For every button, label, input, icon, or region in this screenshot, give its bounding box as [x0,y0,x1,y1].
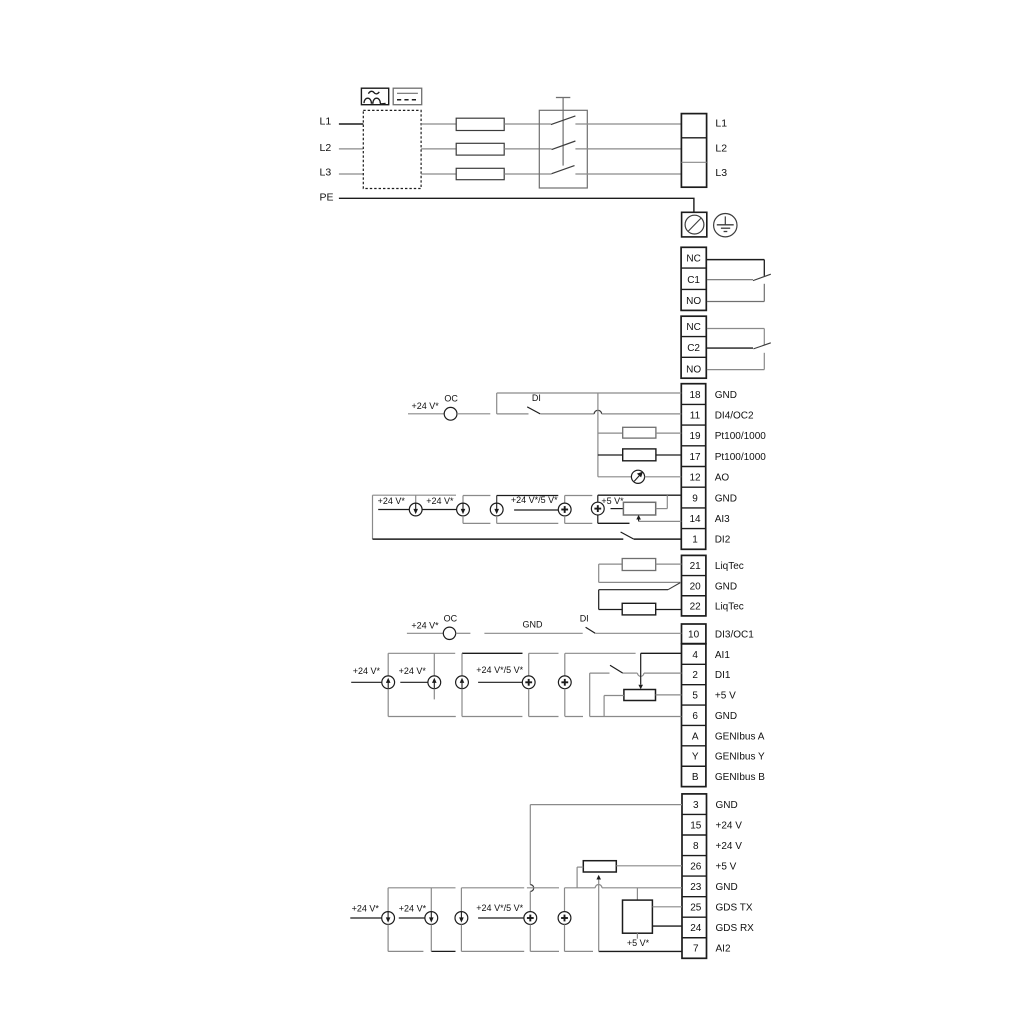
svg-text:GND: GND [715,493,737,504]
svg-text:23: 23 [690,882,702,893]
svg-text:11: 11 [690,410,701,421]
svg-text:L3: L3 [715,167,727,179]
svg-text:DI: DI [532,393,541,403]
svg-text:GND: GND [716,882,738,893]
svg-text:+5 V: +5 V [715,691,736,702]
svg-text:GND: GND [715,581,737,592]
svg-text:DI4/OC2: DI4/OC2 [715,410,754,421]
svg-text:DI: DI [580,614,589,624]
svg-text:LiqTec: LiqTec [715,602,744,613]
svg-text:+24 V: +24 V [716,841,743,852]
svg-text:L2: L2 [320,142,332,154]
svg-text:AO: AO [715,473,730,484]
svg-text:+24 V*: +24 V* [352,903,380,913]
svg-text:9: 9 [692,493,698,504]
svg-text:2: 2 [692,670,698,681]
svg-text:+24 V*: +24 V* [378,496,406,506]
svg-text:+24 V*/5 V*: +24 V*/5 V* [511,495,558,505]
svg-text:NO: NO [686,365,701,376]
svg-text:14: 14 [689,514,701,525]
svg-text:5: 5 [692,691,698,702]
svg-text:20: 20 [690,581,702,592]
svg-text:OC: OC [444,394,458,404]
svg-text:26: 26 [690,862,702,873]
svg-text:25: 25 [690,903,702,914]
svg-text:C2: C2 [687,343,700,354]
svg-text:GDS TX: GDS TX [716,903,753,914]
svg-text:GDS RX: GDS RX [716,923,755,934]
svg-text:+24 V*: +24 V* [353,666,381,676]
svg-text:17: 17 [689,452,701,463]
svg-text:10: 10 [688,630,700,641]
svg-text:NC: NC [686,322,700,333]
svg-text:C1: C1 [687,275,700,286]
svg-text:19: 19 [689,431,701,442]
svg-text:Pt100/1000: Pt100/1000 [715,452,767,463]
svg-text:L3: L3 [320,167,332,179]
svg-text:NC: NC [686,253,700,264]
svg-text:24: 24 [690,923,702,934]
svg-text:AI3: AI3 [715,514,730,525]
svg-text:GND: GND [715,711,737,722]
svg-text:Y: Y [692,752,699,763]
svg-text:GND: GND [523,620,544,630]
svg-text:PE: PE [320,191,334,203]
svg-text:+5 V: +5 V [716,862,737,873]
svg-text:+24 V*: +24 V* [399,666,427,676]
svg-text:AI2: AI2 [716,944,731,955]
svg-text:DI2: DI2 [715,535,731,546]
svg-text:15: 15 [690,820,702,831]
svg-text:L1: L1 [715,118,727,130]
svg-text:+24 V*: +24 V* [411,620,439,630]
svg-text:L2: L2 [715,143,727,155]
svg-text:B: B [692,772,699,783]
svg-text:+24 V*: +24 V* [412,401,440,411]
svg-text:OC: OC [444,614,458,624]
svg-text:GND: GND [715,390,737,401]
svg-text:6: 6 [692,711,698,722]
svg-text:18: 18 [689,390,701,401]
svg-text:+24 V*: +24 V* [426,496,454,506]
svg-text:A: A [692,731,699,742]
svg-text:DI1: DI1 [715,670,731,681]
svg-text:DI3/OC1: DI3/OC1 [715,630,754,641]
svg-text:+24 V: +24 V [716,820,743,831]
svg-text:1: 1 [692,535,698,546]
svg-text:GENIbus A: GENIbus A [715,731,765,742]
svg-text:Pt100/1000: Pt100/1000 [715,431,767,442]
svg-text:NO: NO [686,296,701,307]
svg-text:+24 V*: +24 V* [399,903,427,913]
svg-text:12: 12 [689,473,701,484]
svg-text:3: 3 [693,800,699,811]
svg-text:GENIbus B: GENIbus B [715,772,765,783]
svg-text:+5 V*: +5 V* [627,938,650,948]
svg-text:AI1: AI1 [715,650,730,661]
svg-text:4: 4 [692,650,698,661]
svg-text:22: 22 [690,602,702,613]
svg-text:L1: L1 [320,116,332,128]
svg-text:GND: GND [716,800,738,811]
svg-text:+5 V*: +5 V* [601,496,624,506]
svg-text:+24 V*/5 V*: +24 V*/5 V* [476,665,523,675]
svg-text:+24 V*/5 V*: +24 V*/5 V* [476,903,523,913]
svg-text:LiqTec: LiqTec [715,561,744,572]
svg-text:8: 8 [693,841,699,852]
svg-text:21: 21 [690,561,702,572]
svg-text:7: 7 [693,944,699,955]
svg-text:GENIbus Y: GENIbus Y [715,752,765,763]
